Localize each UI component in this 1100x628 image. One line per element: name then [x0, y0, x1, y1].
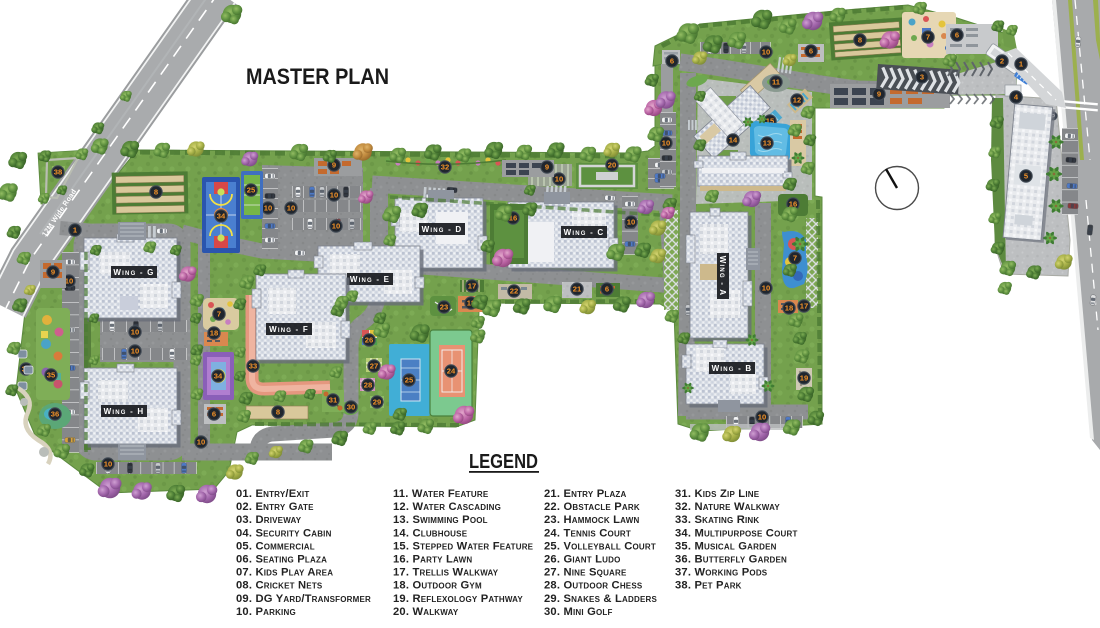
svg-text:35: 35 — [47, 371, 56, 380]
svg-text:10: 10 — [131, 328, 139, 337]
svg-text:18: 18 — [210, 329, 218, 338]
svg-text:17. Trellis Walkway: 17. Trellis Walkway — [393, 567, 499, 579]
svg-text:10: 10 — [762, 48, 770, 57]
svg-text:38. Pet Park: 38. Pet Park — [675, 580, 742, 592]
svg-text:16. Party Lawn: 16. Party Lawn — [393, 554, 472, 566]
svg-text:17: 17 — [468, 282, 476, 291]
svg-text:01. Entry/Exit: 01. Entry/Exit — [236, 488, 309, 500]
svg-text:Wing - E: Wing - E — [350, 275, 390, 284]
svg-text:02. Entry Gate: 02. Entry Gate — [236, 501, 314, 513]
svg-text:21: 21 — [573, 285, 582, 294]
svg-text:28. Outdoor Chess: 28. Outdoor Chess — [544, 580, 643, 592]
svg-text:10: 10 — [762, 284, 770, 293]
svg-text:10: 10 — [330, 191, 338, 200]
svg-text:28: 28 — [364, 381, 372, 390]
svg-text:22. Obstacle Park: 22. Obstacle Park — [544, 501, 640, 513]
svg-text:10: 10 — [332, 222, 340, 231]
svg-text:36: 36 — [51, 410, 59, 419]
svg-text:25: 25 — [247, 186, 256, 195]
svg-text:9: 9 — [877, 90, 881, 99]
svg-text:9: 9 — [51, 268, 55, 277]
svg-text:7: 7 — [793, 254, 797, 263]
svg-text:6: 6 — [955, 31, 959, 40]
svg-text:09. DG Yard/Transformer: 09. DG Yard/Transformer — [236, 593, 371, 605]
svg-text:31. Kids Zip Line: 31. Kids Zip Line — [675, 488, 760, 500]
svg-text:23. Hammock Lawn: 23. Hammock Lawn — [544, 514, 639, 526]
svg-text:Wing - G: Wing - G — [113, 268, 154, 277]
svg-text:26. Giant Ludo: 26. Giant Ludo — [544, 554, 621, 566]
svg-text:8: 8 — [858, 36, 862, 45]
svg-text:13: 13 — [763, 139, 771, 148]
svg-text:LEGEND: LEGEND — [469, 451, 538, 473]
svg-text:MASTER PLAN: MASTER PLAN — [246, 64, 389, 89]
svg-text:32: 32 — [441, 163, 449, 172]
svg-text:15. Stepped Water Feature: 15. Stepped Water Feature — [393, 540, 534, 552]
svg-text:27. Nine Square: 27. Nine Square — [544, 567, 627, 579]
svg-text:22: 22 — [510, 287, 518, 296]
svg-text:10: 10 — [65, 277, 73, 286]
svg-text:Wing - D: Wing - D — [422, 225, 463, 234]
svg-text:10: 10 — [264, 204, 272, 213]
svg-text:10: 10 — [758, 413, 766, 422]
svg-text:11: 11 — [772, 78, 781, 87]
svg-text:12. Water Cascading: 12. Water Cascading — [393, 501, 501, 513]
svg-text:2: 2 — [1000, 57, 1004, 66]
svg-text:31: 31 — [329, 396, 338, 405]
svg-text:7: 7 — [217, 310, 221, 319]
svg-text:29. Snakes & Ladders: 29. Snakes & Ladders — [544, 593, 658, 605]
svg-text:17: 17 — [800, 302, 808, 311]
svg-text:10: 10 — [555, 175, 563, 184]
svg-text:33: 33 — [249, 362, 257, 371]
svg-text:10. Parking: 10. Parking — [236, 606, 296, 618]
svg-text:11. Water Feature: 11. Water Feature — [393, 488, 489, 500]
svg-text:25: 25 — [405, 376, 414, 385]
svg-text:05. Commercial: 05. Commercial — [236, 540, 315, 552]
svg-text:3: 3 — [920, 73, 924, 82]
svg-text:Wing - C: Wing - C — [564, 228, 605, 237]
svg-text:13. Swimming Pool: 13. Swimming Pool — [393, 514, 488, 526]
svg-text:37. Working Pods: 37. Working Pods — [675, 567, 768, 579]
svg-text:9: 9 — [545, 163, 549, 172]
svg-text:12: 12 — [793, 96, 801, 105]
svg-text:21. Entry Plaza: 21. Entry Plaza — [544, 488, 627, 500]
svg-text:26: 26 — [365, 336, 373, 345]
svg-text:8: 8 — [154, 188, 158, 197]
svg-text:36. Butterfly Garden: 36. Butterfly Garden — [675, 554, 787, 566]
svg-text:Wing - F: Wing - F — [269, 325, 309, 334]
svg-text:10: 10 — [104, 460, 112, 469]
svg-text:8: 8 — [276, 408, 280, 417]
svg-text:6: 6 — [212, 410, 216, 419]
svg-text:30: 30 — [347, 403, 355, 412]
svg-text:34: 34 — [214, 372, 223, 381]
svg-text:7: 7 — [926, 33, 930, 42]
svg-text:06. Seating Plaza: 06. Seating Plaza — [236, 554, 327, 566]
svg-text:25. Volleyball Court: 25. Volleyball Court — [544, 540, 656, 552]
svg-text:19: 19 — [800, 374, 808, 383]
svg-text:6: 6 — [809, 47, 813, 56]
svg-text:20. Walkway: 20. Walkway — [393, 606, 459, 618]
svg-text:03. Driveway: 03. Driveway — [236, 514, 302, 526]
svg-text:24: 24 — [447, 367, 456, 376]
svg-text:27: 27 — [370, 362, 378, 371]
svg-text:08. Cricket Nets: 08. Cricket Nets — [236, 580, 323, 592]
svg-text:23: 23 — [440, 303, 448, 312]
svg-text:20: 20 — [608, 161, 616, 170]
svg-text:6: 6 — [605, 285, 609, 294]
svg-text:19. Reflexology Pathway: 19. Reflexology Pathway — [393, 593, 523, 605]
svg-text:29: 29 — [373, 398, 381, 407]
svg-text:32. Nature Walkway: 32. Nature Walkway — [675, 501, 780, 513]
svg-text:10: 10 — [197, 438, 205, 447]
svg-text:07. Kids Play Area: 07. Kids Play Area — [236, 567, 333, 579]
svg-text:30. Mini Golf: 30. Mini Golf — [544, 606, 613, 618]
svg-text:04. Security Cabin: 04. Security Cabin — [236, 527, 332, 539]
svg-text:6: 6 — [670, 57, 674, 66]
svg-text:14. Clubhouse: 14. Clubhouse — [393, 527, 468, 539]
svg-text:Wing - B: Wing - B — [712, 364, 753, 373]
svg-text:18: 18 — [785, 304, 793, 313]
svg-text:10: 10 — [287, 204, 295, 213]
svg-text:38: 38 — [54, 168, 62, 177]
svg-text:24. Tennis Court: 24. Tennis Court — [544, 527, 631, 539]
svg-text:35. Musical Garden: 35. Musical Garden — [675, 540, 777, 552]
svg-text:18. Outdoor Gym: 18. Outdoor Gym — [393, 580, 482, 592]
svg-text:Wing - A: Wing - A — [718, 256, 727, 296]
svg-text:10: 10 — [131, 347, 139, 356]
svg-text:34. Multipurpose Court: 34. Multipurpose Court — [675, 527, 798, 539]
svg-text:10: 10 — [627, 218, 635, 227]
svg-text:14: 14 — [729, 136, 738, 145]
svg-text:Wing - H: Wing - H — [104, 407, 145, 416]
svg-text:34: 34 — [217, 212, 226, 221]
svg-text:10: 10 — [662, 139, 670, 148]
svg-text:33. Skating Rink: 33. Skating Rink — [675, 514, 759, 526]
